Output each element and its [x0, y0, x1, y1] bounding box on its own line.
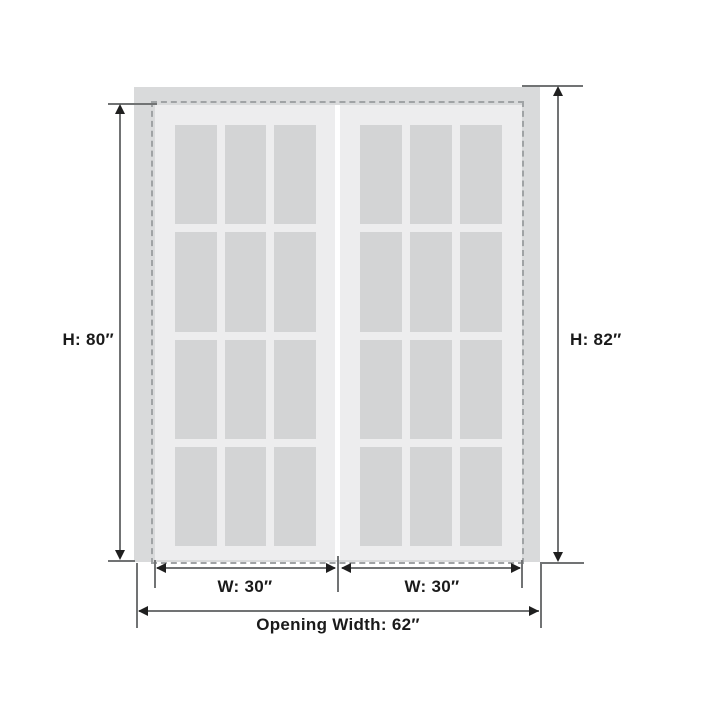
opening-height-label: H: 82″	[570, 330, 622, 350]
glass-lite	[460, 125, 502, 224]
glass-lite	[410, 232, 452, 331]
ext-line-opening-bottom-right	[540, 562, 584, 564]
arrowhead-right-door-width-left	[341, 563, 351, 573]
glass-lite	[175, 447, 217, 546]
left-door	[155, 105, 336, 560]
glass-lite	[274, 447, 316, 546]
glass-lite	[175, 125, 217, 224]
glass-lite	[460, 340, 502, 439]
dim-line-door-height	[119, 106, 121, 558]
ext-line-opening-width-right	[540, 563, 542, 628]
glass-lite	[274, 232, 316, 331]
right-door-width-label: W: 30″	[382, 577, 482, 597]
arrowhead-opening-width-right	[529, 606, 539, 616]
ext-line-door-bottom-left	[108, 560, 135, 562]
arrowhead-door-height-top	[115, 104, 125, 114]
glass-lite	[274, 125, 316, 224]
glass-lite	[175, 232, 217, 331]
arrowhead-opening-width-left	[138, 606, 148, 616]
glass-lite	[274, 340, 316, 439]
ext-line-door-center	[337, 556, 339, 592]
glass-lite	[360, 125, 402, 224]
arrowhead-right-door-width-right	[511, 563, 521, 573]
glass-lite	[410, 447, 452, 546]
dim-line-left-door-width	[157, 567, 335, 569]
ext-line-opening-width-left	[136, 563, 138, 628]
glass-lite	[225, 340, 267, 439]
glass-lite	[460, 447, 502, 546]
left-door-width-label: W: 30″	[195, 577, 295, 597]
glass-lite	[225, 447, 267, 546]
glass-lite	[225, 125, 267, 224]
arrowhead-opening-height-bottom	[553, 552, 563, 562]
double-door-dimension-diagram: H: 80″ H: 82″ W: 30″ W: 30″ Opening Widt…	[0, 0, 720, 720]
dim-line-opening-width	[139, 610, 539, 612]
arrowhead-door-height-bottom	[115, 550, 125, 560]
opening-width-label: Opening Width: 62″	[238, 615, 438, 635]
right-door	[340, 105, 522, 560]
arrowhead-left-door-width-right	[326, 563, 336, 573]
door-height-label: H: 80″	[44, 330, 114, 350]
glass-lite	[360, 447, 402, 546]
glass-lite	[410, 125, 452, 224]
dim-line-opening-height	[557, 88, 559, 560]
dim-line-right-door-width	[342, 567, 520, 569]
glass-lite	[360, 232, 402, 331]
glass-lite	[460, 232, 502, 331]
door-meeting-gap	[335, 105, 340, 560]
glass-lite	[175, 340, 217, 439]
glass-lite	[225, 232, 267, 331]
ext-line-right-door-right	[521, 560, 523, 588]
glass-lite	[360, 340, 402, 439]
arrowhead-opening-height-top	[553, 86, 563, 96]
glass-lite	[410, 340, 452, 439]
arrowhead-left-door-width-left	[156, 563, 166, 573]
